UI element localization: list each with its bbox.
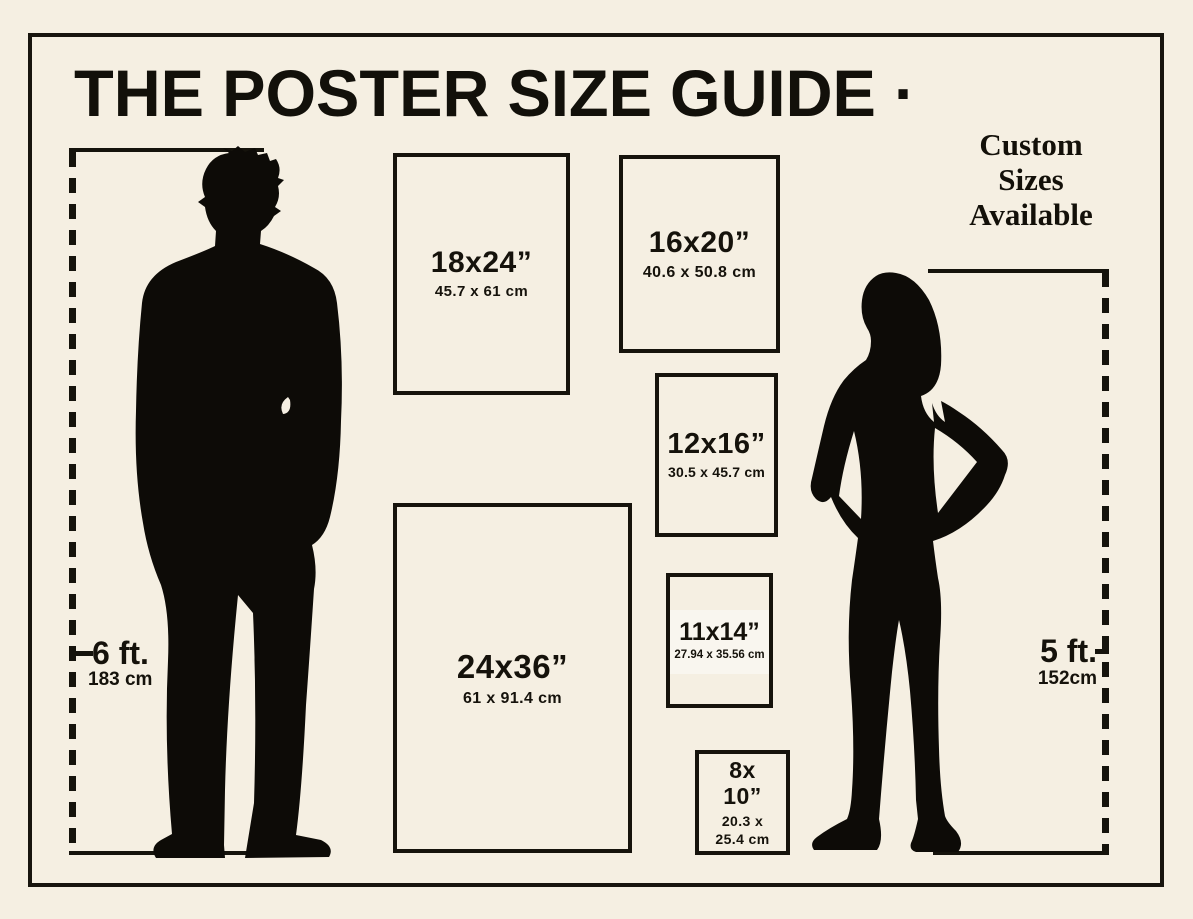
poster-box-12x16: 12x16” 30.5 x 45.7 cm [655, 373, 778, 537]
man-silhouette [128, 145, 348, 862]
poster-size-label: 24x36” [457, 649, 568, 685]
poster-size-guide: THE POSTER SIZE GUIDE · Custom Sizes Ava… [0, 0, 1193, 919]
custom-note-line: Available [940, 197, 1122, 232]
poster-size-label: 10” [723, 783, 762, 809]
custom-sizes-note: Custom Sizes Available [940, 127, 1122, 232]
poster-box-11x14: 11x14” 27.94 x 35.56 cm [666, 573, 773, 708]
poster-box-18x24: 18x24” 45.7 x 61 cm [393, 153, 570, 395]
page-title: THE POSTER SIZE GUIDE · [74, 56, 916, 130]
poster-box-8x10: 8x 10” 20.3 x 25.4 cm [695, 750, 790, 855]
woman-height-dashed-line [1102, 272, 1109, 855]
man-height-tick [71, 651, 93, 656]
poster-metric-label: 30.5 x 45.7 cm [668, 465, 765, 480]
custom-note-line: Sizes [940, 162, 1122, 197]
poster-metric-label: 45.7 x 61 cm [435, 284, 528, 301]
woman-height-cm-label: 152cm [1007, 669, 1097, 689]
poster-metric-label: 20.3 x [722, 812, 763, 830]
poster-size-label: 18x24” [431, 247, 532, 279]
poster-metric-label: 25.4 cm [715, 830, 769, 848]
woman-silhouette [810, 270, 1010, 857]
poster-size-label: 11x14” [679, 619, 760, 646]
woman-height-feet-label: 5 ft. [1007, 635, 1097, 667]
poster-box-24x36: 24x36” 61 x 91.4 cm [393, 503, 632, 853]
poster-size-label: 12x16” [667, 429, 765, 460]
custom-note-line: Custom [940, 127, 1122, 162]
poster-metric-label: 40.6 x 50.8 cm [643, 264, 756, 282]
poster-box-16x20: 16x20” 40.6 x 50.8 cm [619, 155, 780, 353]
poster-metric-label: 27.94 x 35.56 cm [674, 649, 764, 662]
woman-height-tick [1095, 649, 1109, 654]
poster-size-label: 16x20” [649, 227, 750, 259]
poster-metric-label: 61 x 91.4 cm [463, 690, 562, 708]
man-height-dashed-line [69, 152, 76, 855]
poster-size-label: 8x [729, 757, 756, 783]
